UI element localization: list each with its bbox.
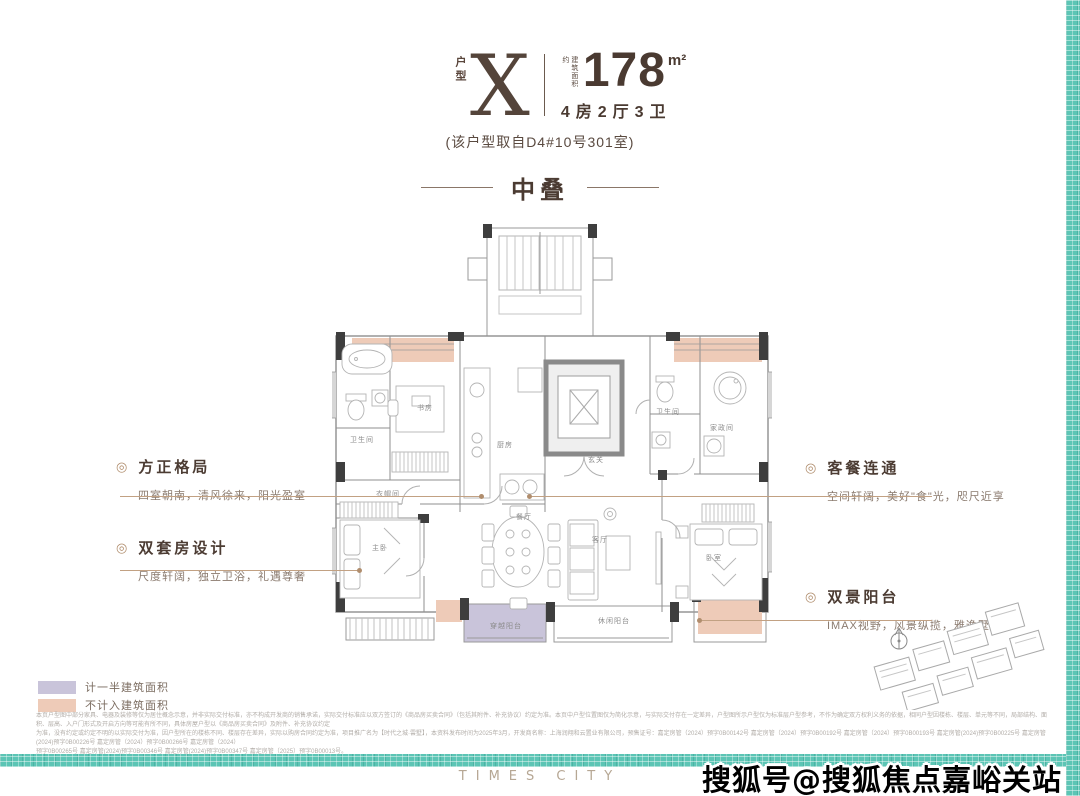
room-label-kitchen: 厨房 <box>497 440 513 450</box>
legend-swatch-salmon <box>38 699 76 712</box>
callout-desc-text: 四室朝南，清风徐来，阳光盈室 <box>116 487 306 503</box>
header-divider <box>544 54 545 116</box>
callout-dot-double-suite <box>357 568 362 573</box>
area-prefix: 建筑面积约 <box>561 56 579 94</box>
area-value: 178 <box>583 48 666 94</box>
room-label-living: 客厅 <box>592 535 608 545</box>
room-label-balcony-left: 穿越阳台 <box>490 621 522 631</box>
disclaimer-line: 本页户型图中部分家具、电器及装修等仅为居住概念示意，并非实际交付标准，亦不构成开… <box>36 712 1048 730</box>
legend-label: 不计入建筑面积 <box>85 697 169 713</box>
callout-line-square-layout <box>120 496 482 497</box>
section-title: 中叠 <box>421 170 659 205</box>
room-label-bath2: 卫生间 <box>656 407 680 417</box>
unit-header: 户型 X 建筑面积约 178 m² 4房2厅3卫 <box>452 48 686 124</box>
unit-type-label: 户型 <box>452 56 468 84</box>
double-circle-icon: ◎ <box>116 459 130 475</box>
unit-type-letter: X <box>470 48 530 124</box>
title-line-right <box>587 187 659 188</box>
room-label-bath1: 卫生间 <box>350 435 374 445</box>
room-label-util: 家政间 <box>710 423 734 433</box>
room-label-master: 主卧 <box>372 543 388 553</box>
section-title-text: 中叠 <box>511 170 569 205</box>
double-circle-icon: ◎ <box>805 460 819 476</box>
room-label-dining: 餐厅 <box>516 512 532 522</box>
sohu-watermark: 搜狐号@搜狐焦点嘉峪关站 <box>702 757 1062 796</box>
callout-title-text: 客餐连通 <box>827 457 899 478</box>
area-block: 建筑面积约 178 m² 4房2厅3卫 <box>561 48 686 122</box>
site-plan-minimap <box>866 598 1060 710</box>
double-circle-icon: ◎ <box>116 540 130 556</box>
room-label-foyer: 玄关 <box>588 455 604 465</box>
callout-line-connected-dining <box>530 496 932 497</box>
callout-title-text: 双套房设计 <box>138 537 228 558</box>
room-label-bed2: 卧室 <box>706 553 722 563</box>
rooms-summary: 4房2厅3卫 <box>561 98 686 122</box>
floor-plan-page: 户型 X 建筑面积约 178 m² 4房2厅3卫 (该户型取自D4#10号301… <box>0 0 1080 796</box>
legend-label: 计一半建筑面积 <box>85 679 169 695</box>
title-line-left <box>421 187 493 188</box>
room-label-cloak: 衣帽间 <box>376 489 400 499</box>
disclaimer-text: 本页户型图中部分家具、电器及装修等仅为居住概念示意，并非实际交付标准，亦不构成开… <box>36 712 1048 757</box>
floor-plan-drawing <box>332 222 772 664</box>
elevator <box>546 362 622 454</box>
callout-double-suite: ◎ 双套房设计 尺度轩阔，独立卫浴，礼遇尊奢 <box>116 537 306 584</box>
callout-dot-connected-dining <box>527 494 532 499</box>
double-circle-icon: ◎ <box>805 589 819 605</box>
room-label-balcony-mid: 休闲阳台 <box>598 616 630 626</box>
legend-swatch-lavender <box>38 681 76 694</box>
legend-excluded-area: 不计入建筑面积 <box>38 697 169 713</box>
area-unit: m² <box>668 52 686 69</box>
callout-title-text: 方正格局 <box>138 456 210 477</box>
callout-line-double-suite <box>120 570 360 571</box>
legend-half-area: 计一半建筑面积 <box>38 679 169 695</box>
brand-logo: TIMES CITY <box>459 769 621 784</box>
callout-dot-square-layout <box>479 494 484 499</box>
disclaimer-line: 为准，没有约定或约定不明的以实际交付为准，因户型所在的楼栋不同、楼层存在差异，实… <box>36 730 1048 748</box>
unit-source-note: (该户型取自D4#10号301室) <box>446 132 635 152</box>
callout-dot-double-balcony <box>697 618 702 623</box>
decorative-right-strip <box>1066 0 1080 796</box>
stair-tower <box>468 224 612 336</box>
room-label-study: 书房 <box>417 403 433 413</box>
